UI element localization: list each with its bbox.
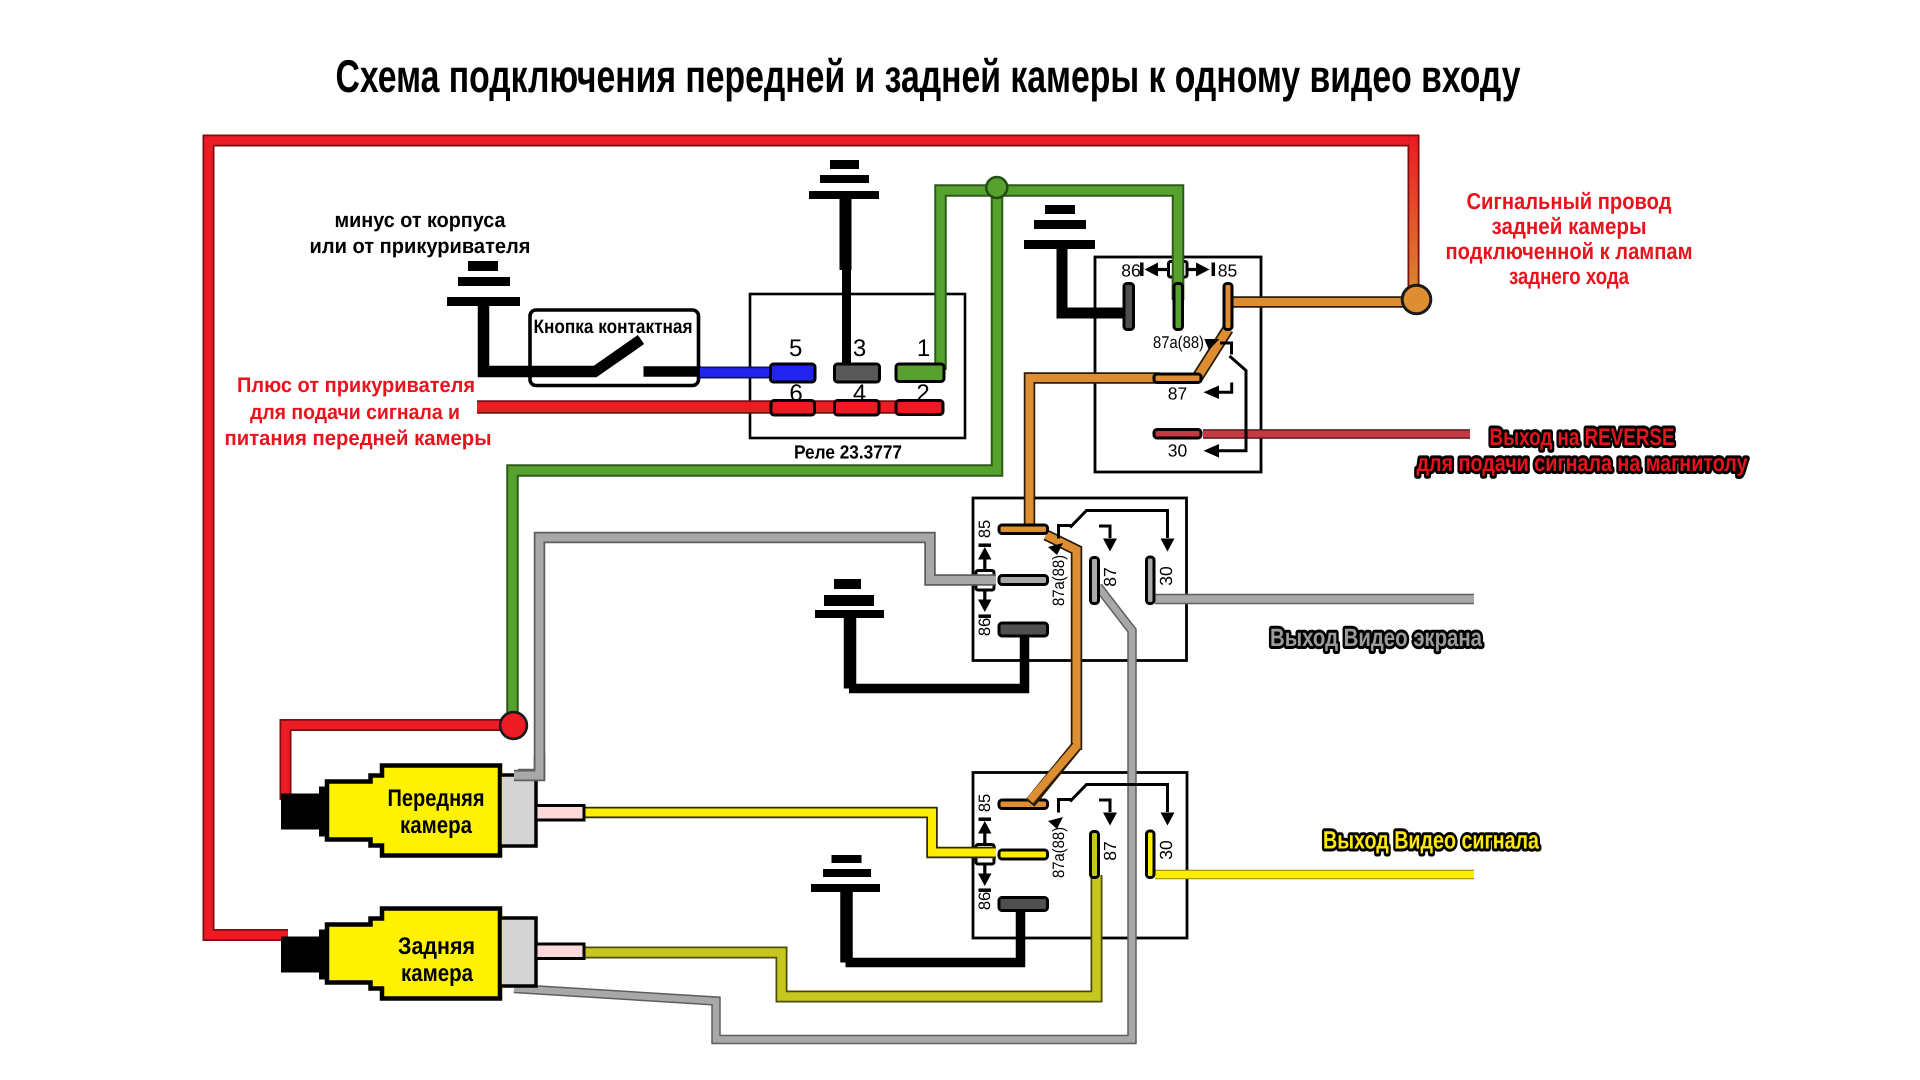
svg-text:минус от корпуса: минус от корпуса (335, 209, 506, 232)
svg-text:30: 30 (1168, 441, 1188, 461)
svg-text:Плюс от прикуривателя: Плюс от прикуривателя (237, 374, 475, 397)
svg-text:87a(88): 87a(88) (1050, 555, 1068, 606)
svg-text:Передняя: Передняя (388, 785, 485, 812)
svg-text:85: 85 (976, 794, 994, 812)
svg-text:Кнопка контактная: Кнопка контактная (534, 316, 693, 338)
svg-text:2: 2 (916, 380, 929, 407)
svg-text:Выход на REVERSE: Выход на REVERSE (1490, 424, 1675, 451)
svg-text:Реле 23.3777: Реле 23.3777 (794, 443, 902, 464)
svg-text:подключенной к лампам: подключенной к лампам (1446, 238, 1693, 264)
svg-text:30: 30 (1156, 840, 1176, 860)
svg-text:85: 85 (1218, 261, 1237, 281)
svg-text:Выход Видео экрана: Выход Видео экрана (1270, 624, 1483, 652)
svg-text:4: 4 (853, 380, 866, 407)
svg-text:86: 86 (976, 892, 994, 910)
svg-text:30: 30 (1156, 566, 1176, 586)
svg-text:85: 85 (976, 520, 994, 538)
svg-text:87a(88): 87a(88) (1153, 333, 1204, 352)
svg-text:5: 5 (789, 335, 802, 362)
svg-text:питания передней камеры: питания передней камеры (225, 427, 492, 450)
svg-text:Сигнальный провод: Сигнальный провод (1467, 188, 1672, 214)
svg-text:87a(88): 87a(88) (1050, 827, 1068, 878)
svg-text:87: 87 (1168, 384, 1187, 404)
svg-text:камера: камера (401, 960, 474, 987)
svg-text:Выход Видео сигнала: Выход Видео сигнала (1323, 827, 1540, 855)
svg-text:Задняя: Задняя (398, 933, 475, 960)
svg-text:1: 1 (917, 335, 930, 362)
svg-text:86: 86 (1121, 261, 1140, 281)
svg-text:86: 86 (976, 618, 994, 636)
svg-text:Схема подключения передней и з: Схема подключения передней и задней каме… (336, 50, 1521, 102)
svg-text:6: 6 (789, 380, 802, 407)
svg-text:заднего хода: заднего хода (1509, 263, 1629, 289)
svg-text:или от прикуривателя: или от прикуривателя (310, 235, 531, 258)
svg-text:87: 87 (1100, 567, 1120, 586)
svg-text:3: 3 (853, 335, 866, 362)
svg-text:для подачи сигнала и: для подачи сигнала и (250, 401, 460, 424)
svg-text:87: 87 (1100, 841, 1120, 860)
svg-text:камера: камера (400, 812, 473, 839)
svg-text:для подачи сигнала на магнитол: для подачи сигнала на магнитолу (1417, 450, 1749, 477)
svg-text:задней камеры: задней камеры (1492, 213, 1647, 239)
